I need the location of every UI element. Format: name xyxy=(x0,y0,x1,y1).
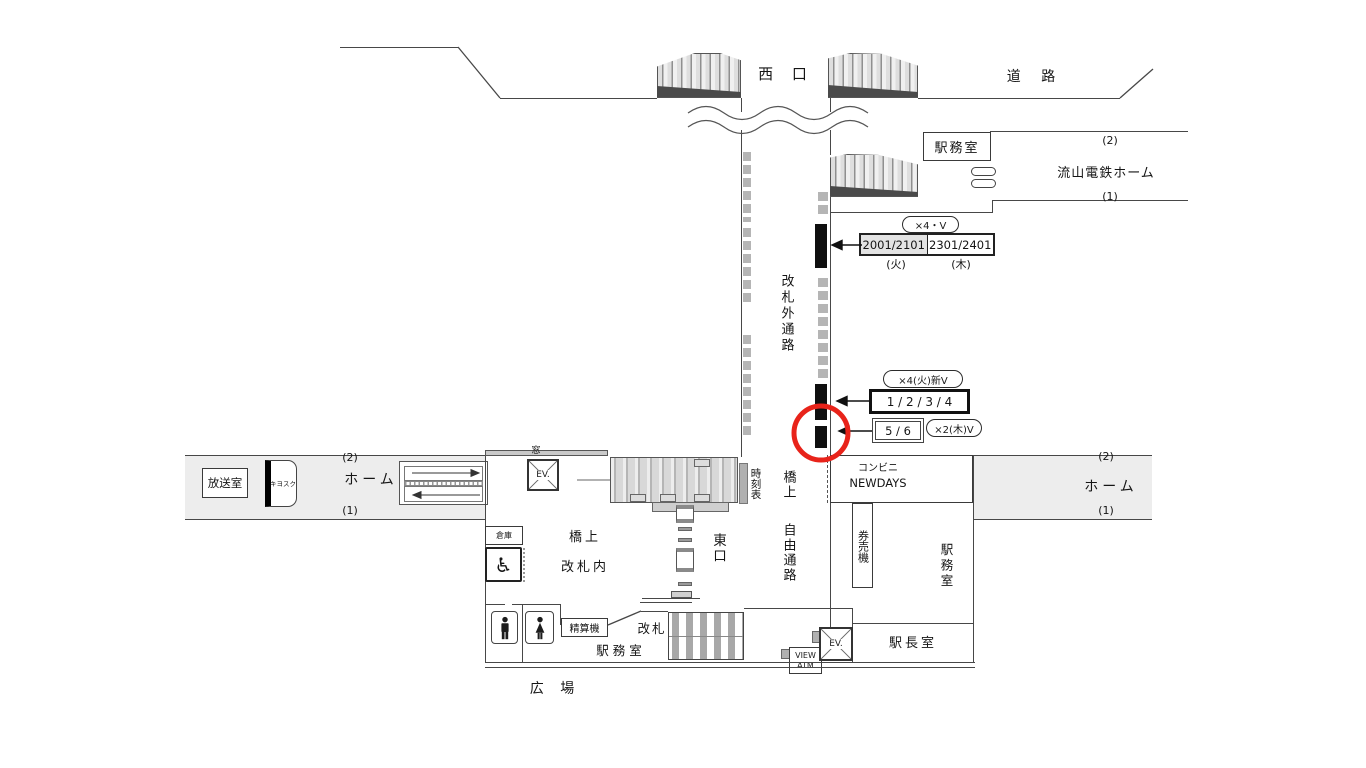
bridge-top-wall xyxy=(485,450,608,456)
east-exit-label: 東口 xyxy=(709,524,727,572)
gate-canopy xyxy=(671,591,692,598)
ticket-gates xyxy=(668,612,744,660)
south-corridor-line xyxy=(744,608,852,609)
wall-window-marks-left-3 xyxy=(743,335,751,438)
ad-board-56 xyxy=(815,426,827,448)
sign-tag-x2: ×2(木)V xyxy=(926,419,982,437)
master-office-top-line xyxy=(852,623,973,624)
elevator-south: EV. xyxy=(819,627,853,661)
station-floor-plan: 道 路 西 口 駅務室 (2) 流山電鉄ホーム (1) ×4・V 2001/21… xyxy=(0,0,1366,768)
nagareyama-track1: (1) xyxy=(1094,190,1126,203)
sign-day-tue: (火) xyxy=(871,257,921,271)
outline-top-right xyxy=(918,98,1120,99)
toilet-wall-2 xyxy=(512,604,560,605)
west-exit-stairs-right xyxy=(828,53,918,98)
gate-outer-line xyxy=(640,602,692,603)
nagareyama-stairs xyxy=(830,154,918,197)
wall-window-marks-right-1 xyxy=(818,192,828,216)
corridor-wall-stub-left xyxy=(741,98,742,112)
elevator-inside-gate: EV. xyxy=(527,459,559,491)
west-track2: (2) xyxy=(336,450,364,464)
wall-window-marks-left-2 xyxy=(743,228,751,302)
sign-tag-x4v: ×4・V xyxy=(902,216,959,233)
escalator-lane-down xyxy=(404,486,483,502)
wheelchair-icon: ♿ xyxy=(485,547,522,582)
nagareyama-platform-top xyxy=(990,131,1188,132)
pillar-2 xyxy=(676,548,694,572)
ad-board-1234 xyxy=(815,384,827,420)
kiosk: キヨスク xyxy=(265,460,297,507)
south-boundary-1 xyxy=(485,662,975,663)
male-icon xyxy=(497,615,513,641)
corridor-wall-right xyxy=(830,196,831,628)
outline-diagonal-left xyxy=(458,47,500,98)
elevator-south-label: EV. xyxy=(827,639,845,649)
nagareyama-track2: (2) xyxy=(1094,134,1126,147)
stairs-landing-1 xyxy=(694,459,710,467)
newdays-label: NEWDAYS xyxy=(837,475,919,490)
east-track1: (1) xyxy=(1090,503,1122,517)
east-platform-top xyxy=(974,455,1152,456)
west-exit-label: 西 口 xyxy=(745,62,827,84)
station-office-east: 駅務室 xyxy=(936,538,956,594)
break-waves xyxy=(688,107,868,134)
free-passage-label: 自由通路 xyxy=(779,516,797,590)
pillar-disc-1 xyxy=(678,527,692,531)
outline-top-left-2 xyxy=(500,98,657,99)
west-platform-bottom xyxy=(185,519,485,520)
wall-window-marks-right-2 xyxy=(818,278,828,382)
storage-room: 倉庫 xyxy=(485,526,523,545)
female-icon xyxy=(532,615,548,641)
view-atm-line1: VIEW xyxy=(795,651,816,660)
corridor-label: 改札外通路 xyxy=(776,266,796,362)
west-platform-top xyxy=(185,455,485,456)
bench-oval-1 xyxy=(971,167,996,176)
timetable-board xyxy=(739,463,748,504)
sign-box-56: 5 / 6 xyxy=(872,418,924,443)
sign-cell-2001: 2001/2101 xyxy=(861,235,928,254)
station-office-south: 駅 務 室 xyxy=(586,641,652,657)
elevator-inside-gate-label: EV. xyxy=(534,470,552,480)
pillar-disc-3 xyxy=(678,582,692,586)
newdays-conbini-label: コンビニ xyxy=(837,460,919,473)
fare-adjustment-machine: 精算機 xyxy=(561,618,608,637)
station-office-top: 駅務室 xyxy=(923,132,991,161)
view-atm: VIEW ATM xyxy=(789,647,822,674)
sign-tag-x4-new: ×4(火)新V xyxy=(883,370,963,388)
east-platform-bottom xyxy=(974,519,1152,520)
toilet-partition xyxy=(522,604,523,662)
nagareyama-platform-edge xyxy=(830,212,992,213)
nagareyama-platform-bottom xyxy=(992,200,1188,201)
free-passage-kyojo-label: 橋上 xyxy=(779,466,797,504)
sign-box-2001-2301: 2001/2101 2301/2401 xyxy=(859,233,995,256)
toilet-wall-1 xyxy=(485,604,505,605)
road-label: 道 路 xyxy=(995,66,1075,86)
sign-box-1234: 1 / 2 / 3 / 4 xyxy=(869,389,970,414)
broadcast-room: 放送室 xyxy=(202,468,248,498)
stairs-landing-4 xyxy=(694,494,710,502)
nagareyama-platform-name: 流山電鉄ホーム xyxy=(1045,163,1167,179)
ad-board-large xyxy=(815,224,827,268)
wheelchair-dotted-line xyxy=(523,548,525,582)
ticket-machines-label: 券売機 xyxy=(855,516,870,576)
inside-gate-label: 改札内 xyxy=(556,557,614,574)
plaza-label: 広 場 xyxy=(518,678,592,698)
newdays-shop: コンビニ NEWDAYS xyxy=(830,455,973,503)
nagareyama-platform-step xyxy=(992,200,993,213)
east-home-label: ホーム xyxy=(1082,477,1140,494)
bridge-kyojo-label: 橋上 xyxy=(563,527,607,544)
pillar-floor-line xyxy=(642,598,700,599)
sign-day-thu: (木) xyxy=(936,257,986,271)
timetable-label: 時刻表 xyxy=(749,462,763,506)
pillar-disc-2 xyxy=(678,538,692,542)
wall-window-marks-left-1 xyxy=(743,152,751,222)
outline-top-left xyxy=(340,47,458,48)
toilet-male xyxy=(491,611,518,644)
toilet-female xyxy=(525,611,554,644)
west-exit-stairs-left xyxy=(657,53,741,98)
west-home-label: ホーム xyxy=(344,470,398,488)
gate-approach-line xyxy=(641,611,668,612)
gate-label: 改札 xyxy=(634,619,670,635)
stairs-landing-3 xyxy=(660,494,676,502)
corridor-wall-stub-right xyxy=(830,98,831,112)
south-boundary-2 xyxy=(485,667,975,668)
corridor-wall-right-upper xyxy=(830,130,831,155)
ticket-machines: 券売機 xyxy=(852,503,873,588)
window-mark: 窓 xyxy=(529,443,543,455)
outline-diagonal-right xyxy=(1120,69,1153,98)
stairs-landing-2 xyxy=(630,494,646,502)
corridor-wall-left xyxy=(741,130,742,457)
station-master-office: 駅長室 xyxy=(853,626,973,656)
east-track2: (2) xyxy=(1090,449,1122,463)
sign-cell-2301: 2301/2401 xyxy=(928,235,994,254)
bench-oval-2 xyxy=(971,179,996,188)
west-track1: (1) xyxy=(336,503,364,517)
kiosk-label: キヨスク xyxy=(272,476,294,490)
escalator-lane-up xyxy=(404,466,483,481)
free-passage-dashed-boundary xyxy=(827,455,828,503)
pillar-1 xyxy=(676,505,694,523)
